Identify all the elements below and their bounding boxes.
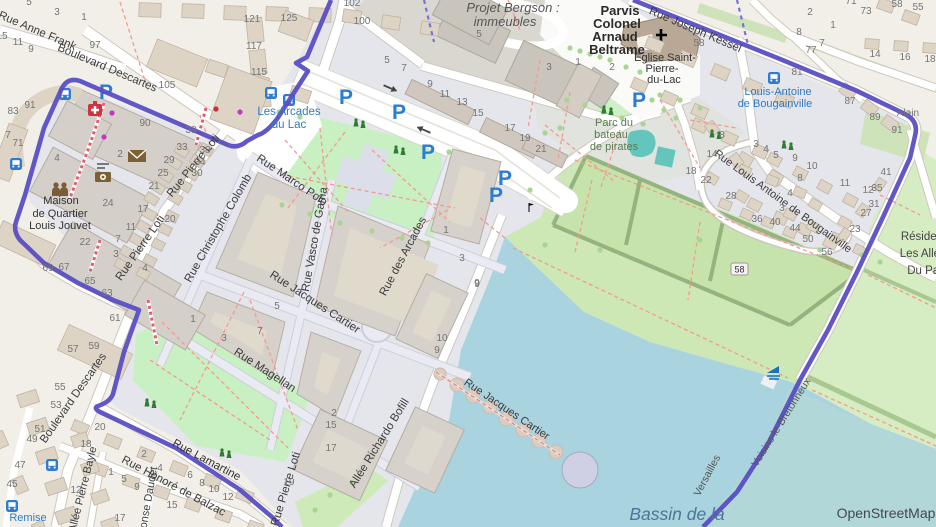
svg-text:5: 5 bbox=[476, 29, 482, 40]
svg-text:Alain: Alain bbox=[897, 108, 919, 119]
svg-text:97: 97 bbox=[89, 40, 101, 51]
svg-text:30: 30 bbox=[191, 168, 203, 179]
svg-text:115: 115 bbox=[251, 67, 267, 78]
svg-text:17: 17 bbox=[504, 123, 516, 134]
svg-text:11: 11 bbox=[13, 37, 24, 48]
svg-text:27: 27 bbox=[860, 208, 872, 219]
svg-text:36: 36 bbox=[751, 214, 763, 225]
svg-text:bateau: bateau bbox=[594, 129, 628, 141]
svg-text:58: 58 bbox=[734, 265, 744, 275]
svg-text:Parc du: Parc du bbox=[595, 117, 633, 129]
svg-text:OpenStreetMap: OpenStreetMap bbox=[837, 505, 936, 521]
svg-text:Louis Jouvet: Louis Jouvet bbox=[29, 220, 91, 232]
svg-text:1: 1 bbox=[108, 467, 114, 478]
svg-text:7: 7 bbox=[819, 38, 825, 49]
svg-text:102: 102 bbox=[344, 0, 361, 9]
svg-text:Remise: Remise bbox=[9, 512, 46, 524]
svg-text:P: P bbox=[392, 101, 406, 124]
svg-text:3: 3 bbox=[221, 333, 227, 344]
svg-text:P: P bbox=[421, 141, 435, 164]
svg-text:18: 18 bbox=[685, 166, 697, 177]
svg-text:4: 4 bbox=[157, 463, 163, 474]
svg-text:9: 9 bbox=[134, 482, 140, 493]
svg-text:1: 1 bbox=[81, 12, 87, 23]
svg-text:71: 71 bbox=[845, 0, 857, 7]
svg-text:Maison: Maison bbox=[43, 195, 78, 207]
svg-text:89: 89 bbox=[869, 112, 881, 123]
svg-text:13: 13 bbox=[456, 97, 468, 108]
svg-text:81: 81 bbox=[791, 67, 803, 78]
svg-text:Projet Bergson :: Projet Bergson : bbox=[466, 0, 560, 15]
svg-text:39: 39 bbox=[185, 125, 197, 136]
svg-text:125: 125 bbox=[281, 13, 298, 24]
svg-text:59: 59 bbox=[88, 341, 100, 352]
svg-text:2: 2 bbox=[331, 408, 337, 419]
svg-text:18: 18 bbox=[924, 54, 936, 65]
svg-text:1: 1 bbox=[443, 225, 449, 236]
svg-text:9: 9 bbox=[427, 79, 433, 90]
svg-text:57: 57 bbox=[67, 344, 79, 355]
svg-text:1: 1 bbox=[830, 20, 836, 31]
svg-text:Les Allées: Les Allées bbox=[900, 248, 936, 260]
svg-text:56: 56 bbox=[821, 247, 833, 258]
svg-text:21: 21 bbox=[535, 144, 547, 155]
svg-text:8: 8 bbox=[199, 478, 205, 489]
svg-text:83: 83 bbox=[7, 106, 19, 117]
svg-text:immeubles: immeubles bbox=[474, 14, 537, 29]
svg-text:4: 4 bbox=[763, 144, 769, 155]
svg-text:11: 11 bbox=[440, 89, 451, 100]
svg-text:21: 21 bbox=[148, 181, 160, 192]
svg-text:6: 6 bbox=[187, 470, 193, 481]
svg-text:5: 5 bbox=[121, 474, 127, 485]
svg-text:3: 3 bbox=[546, 62, 552, 73]
svg-text:5: 5 bbox=[26, 0, 32, 8]
svg-text:2: 2 bbox=[807, 7, 813, 18]
svg-text:de pirates: de pirates bbox=[590, 141, 639, 153]
svg-text:3: 3 bbox=[113, 249, 119, 260]
svg-text:Résidence: Résidence bbox=[901, 231, 936, 243]
svg-text:9: 9 bbox=[434, 345, 440, 356]
svg-text:7: 7 bbox=[257, 326, 263, 337]
svg-text:14: 14 bbox=[706, 149, 718, 160]
svg-text:73: 73 bbox=[860, 6, 872, 17]
svg-text:20: 20 bbox=[164, 214, 176, 225]
svg-text:12: 12 bbox=[70, 485, 82, 496]
svg-text:63: 63 bbox=[101, 288, 113, 299]
svg-text:1: 1 bbox=[575, 57, 581, 68]
svg-text:117: 117 bbox=[246, 41, 262, 52]
svg-text:de Bougainville: de Bougainville bbox=[738, 98, 813, 110]
svg-text:12: 12 bbox=[222, 492, 234, 503]
svg-text:7: 7 bbox=[115, 234, 121, 245]
svg-text:20: 20 bbox=[94, 422, 106, 433]
svg-text:2: 2 bbox=[141, 449, 147, 460]
svg-text:49: 49 bbox=[26, 434, 38, 445]
svg-text:10: 10 bbox=[806, 161, 818, 172]
svg-text:8: 8 bbox=[796, 27, 802, 38]
svg-text:33: 33 bbox=[176, 142, 188, 153]
svg-text:P: P bbox=[339, 86, 353, 109]
svg-text:18: 18 bbox=[80, 439, 92, 450]
svg-text:58: 58 bbox=[891, 0, 903, 10]
svg-text:91: 91 bbox=[891, 125, 903, 136]
svg-text:69: 69 bbox=[42, 263, 54, 274]
svg-text:105: 105 bbox=[159, 80, 176, 91]
svg-text:7: 7 bbox=[5, 130, 11, 141]
svg-text:50: 50 bbox=[802, 234, 814, 245]
svg-text:5: 5 bbox=[274, 301, 280, 312]
svg-text:11: 11 bbox=[126, 222, 137, 233]
svg-text:5: 5 bbox=[773, 150, 779, 161]
svg-text:4: 4 bbox=[787, 188, 793, 199]
svg-text:16: 16 bbox=[899, 52, 911, 63]
svg-text:22: 22 bbox=[700, 175, 712, 186]
svg-text:14: 14 bbox=[869, 49, 881, 60]
svg-text:67: 67 bbox=[58, 262, 70, 273]
svg-text:10: 10 bbox=[208, 484, 220, 495]
svg-text:3: 3 bbox=[753, 139, 759, 150]
svg-text:11: 11 bbox=[840, 178, 851, 189]
svg-text:du-Lac: du-Lac bbox=[647, 74, 681, 86]
svg-text:Du Parc: Du Parc bbox=[907, 265, 936, 277]
svg-text:P: P bbox=[489, 184, 503, 207]
svg-text:4: 4 bbox=[54, 153, 60, 164]
svg-text:Les Arcades: Les Arcades bbox=[257, 106, 321, 118]
svg-text:91: 91 bbox=[24, 100, 36, 111]
svg-text:100: 100 bbox=[354, 16, 371, 27]
svg-text:77: 77 bbox=[805, 45, 817, 56]
svg-text:15: 15 bbox=[166, 500, 178, 511]
svg-text:17: 17 bbox=[137, 204, 149, 215]
svg-text:3: 3 bbox=[54, 7, 60, 18]
svg-text:45: 45 bbox=[6, 479, 18, 490]
svg-text:40: 40 bbox=[769, 217, 781, 228]
svg-text:8: 8 bbox=[797, 173, 803, 184]
svg-text:7: 7 bbox=[401, 63, 407, 74]
svg-text:1: 1 bbox=[190, 314, 196, 325]
svg-text:38: 38 bbox=[199, 145, 211, 156]
svg-text:Louis-Antoine: Louis-Antoine bbox=[744, 86, 811, 98]
svg-text:17: 17 bbox=[325, 443, 337, 454]
svg-text:35: 35 bbox=[871, 183, 883, 194]
svg-text:17: 17 bbox=[114, 513, 126, 524]
svg-text:9: 9 bbox=[792, 153, 798, 164]
svg-text:87: 87 bbox=[844, 96, 856, 107]
svg-text:53: 53 bbox=[50, 400, 62, 411]
svg-text:47: 47 bbox=[14, 460, 26, 471]
svg-text:3: 3 bbox=[779, 203, 785, 214]
svg-text:10: 10 bbox=[436, 333, 448, 344]
svg-text:28: 28 bbox=[725, 191, 737, 202]
svg-text:58: 58 bbox=[693, 38, 705, 49]
svg-text:Bassin de la: Bassin de la bbox=[629, 504, 725, 524]
svg-text:9: 9 bbox=[474, 279, 480, 290]
svg-text:71: 71 bbox=[12, 138, 24, 149]
svg-text:55: 55 bbox=[54, 382, 66, 393]
svg-text:29: 29 bbox=[163, 155, 175, 166]
svg-text:61: 61 bbox=[109, 313, 121, 324]
svg-text:9: 9 bbox=[28, 44, 34, 55]
svg-text:19: 19 bbox=[283, 477, 295, 488]
svg-text:4: 4 bbox=[142, 263, 148, 274]
svg-text:19: 19 bbox=[519, 133, 531, 144]
svg-text:2: 2 bbox=[609, 62, 615, 73]
svg-text:3: 3 bbox=[459, 253, 465, 264]
svg-text:44: 44 bbox=[789, 223, 801, 234]
svg-text:15: 15 bbox=[325, 420, 337, 431]
svg-text:22: 22 bbox=[79, 237, 91, 248]
svg-text:34: 34 bbox=[194, 157, 206, 168]
svg-text:2: 2 bbox=[117, 149, 123, 160]
svg-text:8: 8 bbox=[719, 130, 725, 141]
svg-text:15: 15 bbox=[472, 108, 484, 119]
svg-text:65: 65 bbox=[84, 276, 96, 287]
svg-text:121: 121 bbox=[244, 14, 261, 25]
svg-text:41: 41 bbox=[880, 167, 892, 178]
svg-text:55: 55 bbox=[912, 2, 924, 13]
svg-text:23: 23 bbox=[849, 224, 861, 235]
svg-text:P: P bbox=[632, 89, 646, 112]
svg-text:5: 5 bbox=[384, 55, 390, 66]
svg-text:25: 25 bbox=[157, 168, 169, 179]
svg-text:de Quartier: de Quartier bbox=[32, 208, 87, 220]
svg-text:90: 90 bbox=[139, 118, 151, 129]
svg-text:24: 24 bbox=[102, 198, 114, 209]
svg-text:du Lac: du Lac bbox=[272, 119, 307, 131]
svg-text:15: 15 bbox=[0, 31, 8, 42]
